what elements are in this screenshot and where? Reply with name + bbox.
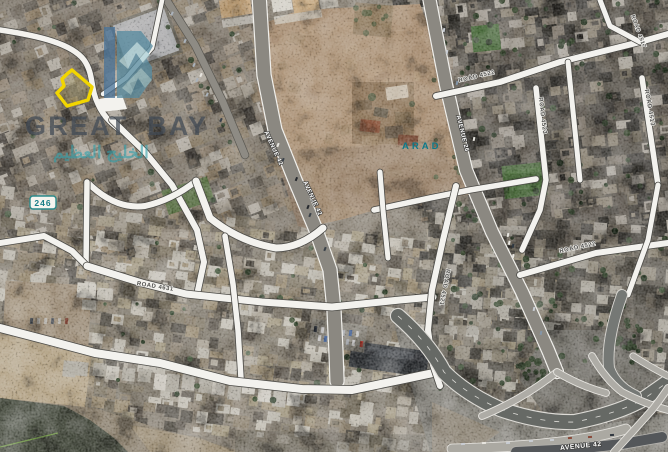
- svg-text:246: 246: [34, 198, 51, 208]
- svg-text:ARAD: ARAD: [402, 141, 441, 152]
- svg-text:GREAT BAY: GREAT BAY: [25, 111, 208, 141]
- svg-text:الخليج العظيم: الخليج العظيم: [53, 143, 149, 163]
